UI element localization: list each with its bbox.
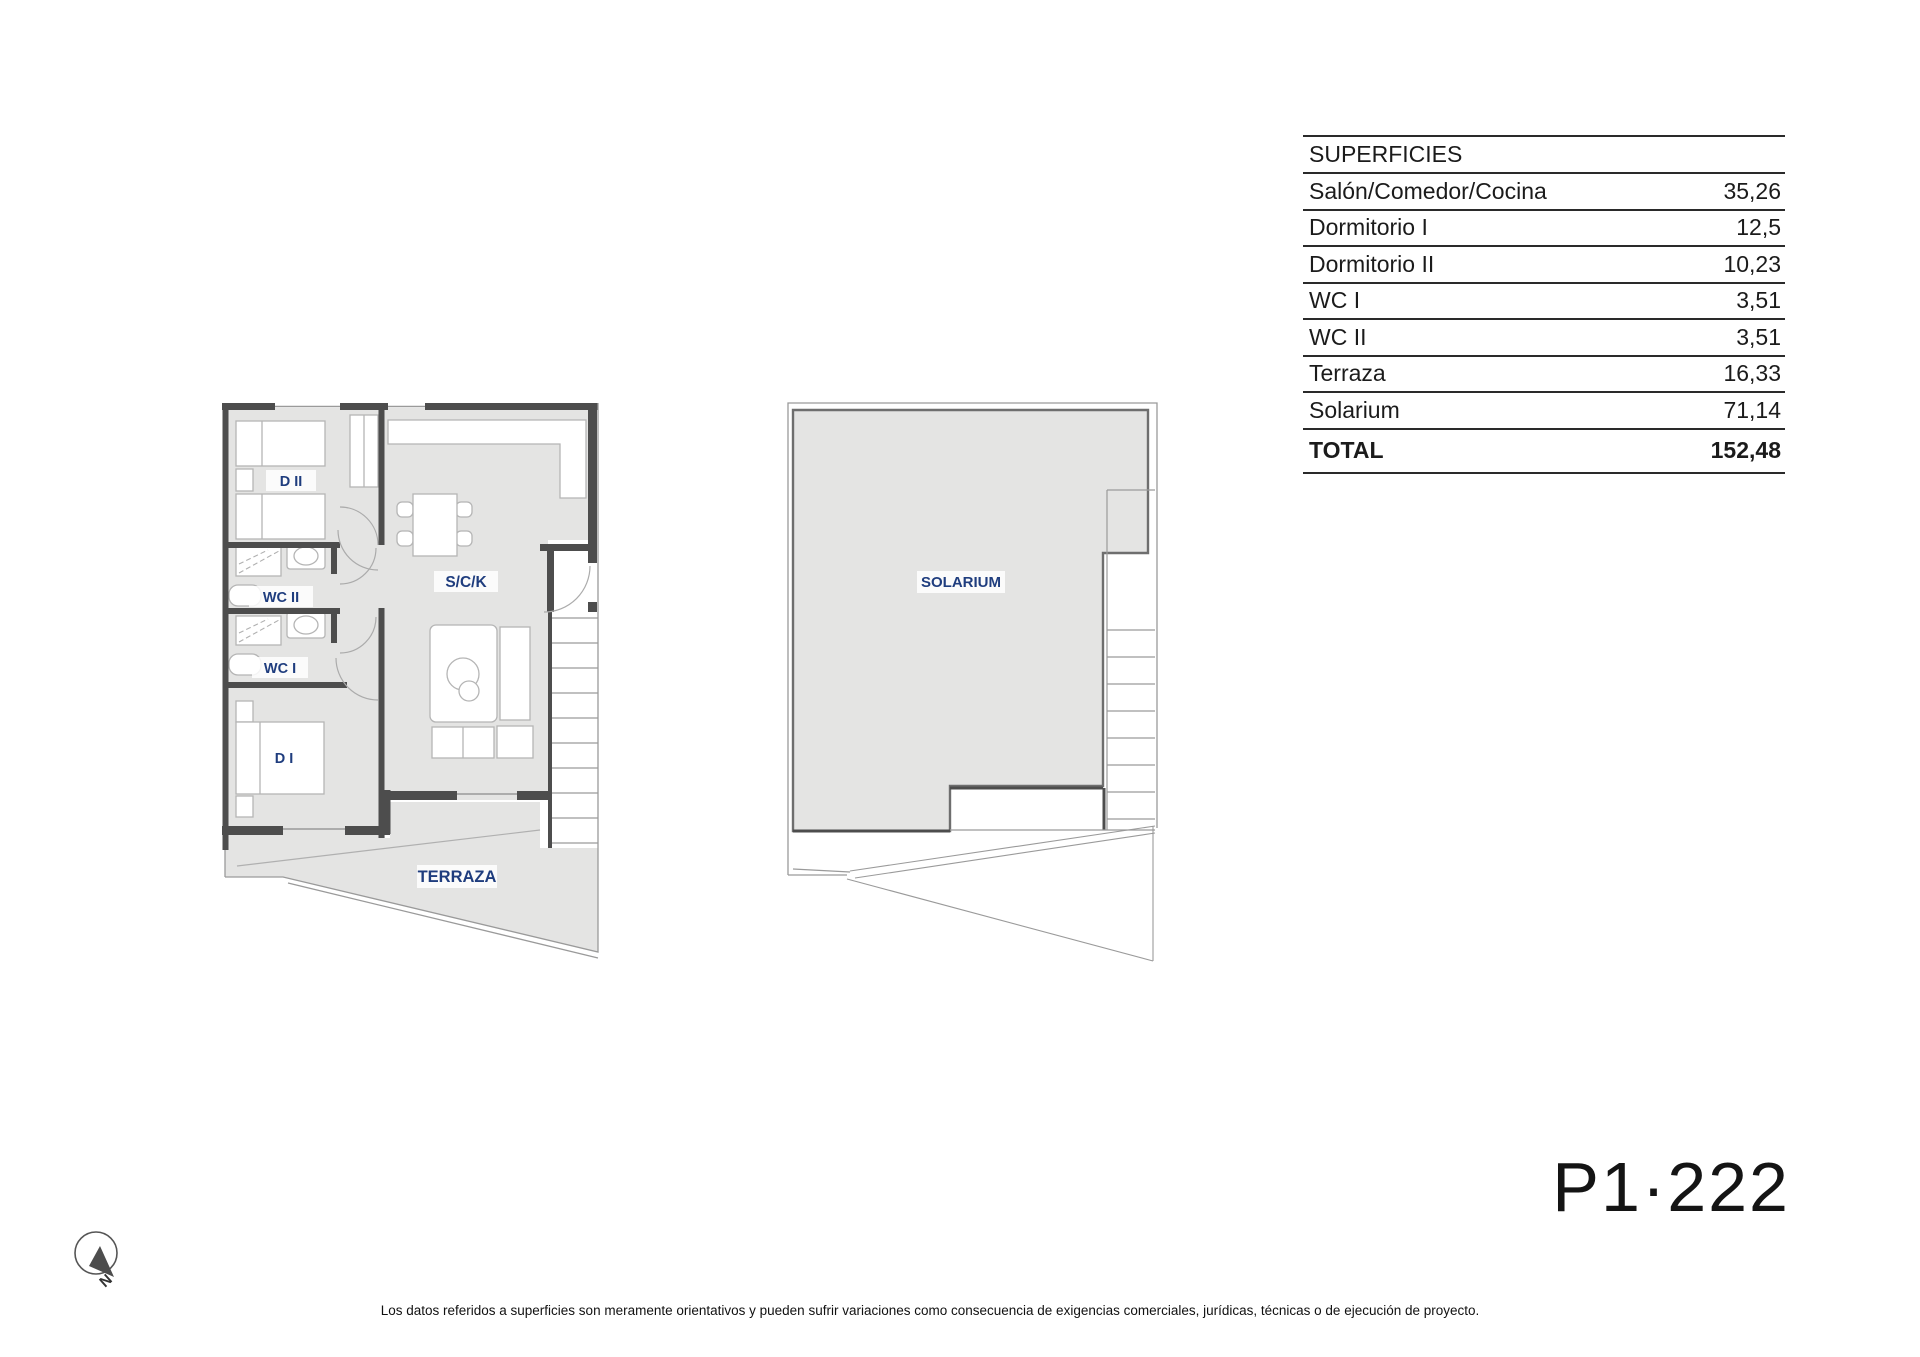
room-label-wc1: WC I — [252, 657, 308, 678]
table-row: Dormitorio II 10,23 — [1303, 247, 1785, 284]
row-value: 71,14 — [1723, 397, 1781, 424]
row-value: 3,51 — [1736, 324, 1781, 351]
solarium-plan: SOLARIUM — [788, 403, 1157, 961]
total-value: 152,48 — [1711, 437, 1781, 464]
plan-sheet: D II WC II WC I D I S/C/K — [0, 0, 1920, 1357]
apartment-plan: D II WC II WC I D I S/C/K — [222, 403, 598, 958]
solarium-staircase-steps — [1107, 630, 1155, 819]
surfaces-table: SUPERFICIES Salón/Comedor/Cocina 35,26 D… — [1303, 135, 1785, 474]
row-label: WC II — [1309, 324, 1367, 351]
room-label-text: WC II — [263, 590, 299, 606]
north-compass: N — [75, 1232, 117, 1291]
room-label-solarium: SOLARIUM — [917, 571, 1005, 593]
row-label: Dormitorio II — [1309, 251, 1434, 278]
surfaces-table-header: SUPERFICIES — [1303, 137, 1785, 174]
disclaimer-text: Los datos referidos a superficies son me… — [0, 1303, 1860, 1318]
row-value: 3,51 — [1736, 287, 1781, 314]
cabinet — [497, 726, 533, 758]
table-row-total: TOTAL 152,48 — [1303, 430, 1785, 474]
chair — [397, 531, 413, 546]
total-label: TOTAL — [1309, 437, 1384, 464]
table-row: Dormitorio I 12,5 — [1303, 211, 1785, 248]
nightstand — [236, 469, 253, 491]
row-label: Terraza — [1309, 360, 1386, 387]
room-label-text: WC I — [264, 661, 296, 677]
shower-tray-wc1 — [236, 616, 281, 645]
door-jamb — [331, 544, 337, 574]
row-label: Salón/Comedor/Cocina — [1309, 178, 1547, 205]
row-value: 12,5 — [1736, 214, 1781, 241]
bed-twin-1 — [236, 421, 325, 466]
row-value: 16,33 — [1723, 360, 1781, 387]
row-value: 10,23 — [1723, 251, 1781, 278]
row-value: 35,26 — [1723, 178, 1781, 205]
bed-twin-2 — [236, 494, 325, 539]
sofa-set — [430, 625, 533, 758]
unit-code: P1·222 — [1390, 1152, 1790, 1222]
terrace-below-outline — [847, 826, 1155, 961]
shower-tray-wc2 — [236, 547, 281, 576]
chair — [456, 531, 472, 546]
nightstand — [236, 796, 253, 817]
room-label-text: D II — [280, 474, 303, 490]
room-label-text: S/C/K — [445, 574, 487, 591]
table-row: Solarium 71,14 — [1303, 393, 1785, 430]
dining-table — [413, 494, 457, 556]
room-label-text: D I — [275, 751, 294, 767]
table-row: Salón/Comedor/Cocina 35,26 — [1303, 174, 1785, 211]
table-row: WC I 3,51 — [1303, 284, 1785, 321]
room-label-text: SOLARIUM — [921, 574, 1001, 591]
chair — [456, 502, 472, 517]
solarium-floor — [793, 410, 1148, 831]
room-label-terraza: TERRAZA — [417, 865, 497, 888]
sink-wc1 — [287, 612, 325, 638]
armchair-unit — [500, 627, 530, 720]
room-label-sck: S/C/K — [434, 571, 498, 592]
room-label-d1: D I — [262, 747, 306, 768]
side-table — [459, 681, 479, 701]
door-jamb — [331, 613, 337, 643]
row-label: Dormitorio I — [1309, 214, 1428, 241]
row-label: WC I — [1309, 287, 1360, 314]
room-label-d2: D II — [266, 470, 316, 491]
room-label-text: TERRAZA — [418, 868, 497, 886]
row-label: Solarium — [1309, 397, 1400, 424]
chair — [397, 502, 413, 517]
room-label-wc2: WC II — [249, 586, 313, 607]
table-row: WC II 3,51 — [1303, 320, 1785, 357]
table-row: Terraza 16,33 — [1303, 357, 1785, 394]
surfaces-title: SUPERFICIES — [1309, 141, 1462, 168]
nightstand — [236, 701, 253, 722]
staircase-steps — [552, 618, 598, 843]
